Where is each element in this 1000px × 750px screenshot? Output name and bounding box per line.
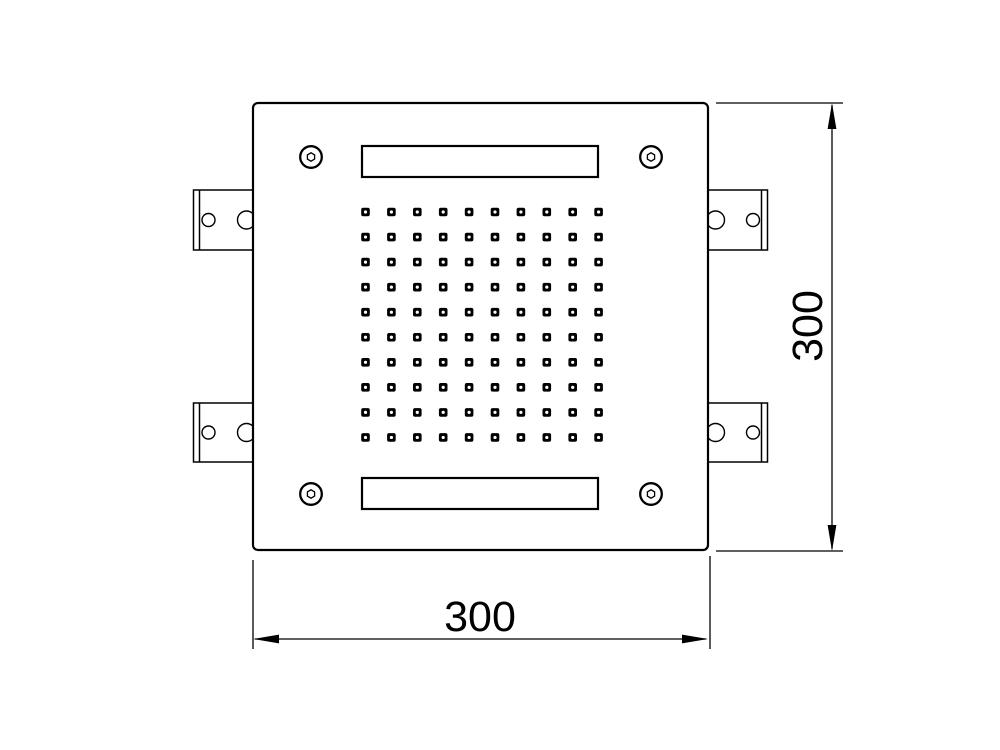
nozzle-center-hole <box>519 436 522 439</box>
nozzle-center-hole <box>545 286 548 289</box>
nozzle-center-hole <box>571 336 574 339</box>
nozzle-center-hole <box>493 411 496 414</box>
nozzle-center-hole <box>493 210 496 213</box>
height-dimension: 300 <box>716 103 843 551</box>
nozzle-center-hole <box>468 361 471 364</box>
nozzle-center-hole <box>364 336 367 339</box>
nozzle-center-hole <box>571 361 574 364</box>
nozzle-center-hole <box>519 311 522 314</box>
nozzle-center-hole <box>468 411 471 414</box>
nozzle-center-hole <box>442 386 445 389</box>
nozzle-center-hole <box>468 336 471 339</box>
nozzle-center-hole <box>468 261 471 264</box>
nozzle-center-hole <box>571 261 574 264</box>
nozzle-center-hole <box>416 261 419 264</box>
nozzle-center-hole <box>364 210 367 213</box>
nozzle-center-hole <box>390 286 393 289</box>
nozzle-center-hole <box>545 235 548 238</box>
nozzle-center-hole <box>364 311 367 314</box>
nozzle-center-hole <box>519 411 522 414</box>
nozzle-center-hole <box>416 386 419 389</box>
nozzle-center-hole <box>442 336 445 339</box>
nozzle-center-hole <box>416 235 419 238</box>
nozzle-center-hole <box>390 210 393 213</box>
nozzle-center-hole <box>416 311 419 314</box>
nozzle-center-hole <box>493 286 496 289</box>
hex-socket-icon <box>307 153 314 161</box>
nozzle-center-hole <box>416 436 419 439</box>
nozzle-center-hole <box>442 436 445 439</box>
height-dimension-label: 300 <box>784 290 832 362</box>
bracket-hole-large <box>707 424 725 442</box>
nozzle-center-hole <box>545 361 548 364</box>
nozzle-center-hole <box>468 286 471 289</box>
nozzle-center-hole <box>597 336 600 339</box>
nozzle-center-hole <box>545 411 548 414</box>
nozzle-center-hole <box>571 411 574 414</box>
nozzle-center-hole <box>597 261 600 264</box>
hex-socket-icon <box>647 490 654 498</box>
nozzle-center-hole <box>519 286 522 289</box>
nozzle-center-hole <box>519 235 522 238</box>
nozzle-center-hole <box>545 336 548 339</box>
nozzle-center-hole <box>390 311 393 314</box>
nozzle-center-hole <box>364 361 367 364</box>
nozzle-center-hole <box>571 311 574 314</box>
nozzle-center-hole <box>390 361 393 364</box>
mounting-bracket-top-left <box>194 190 256 250</box>
nozzle-center-hole <box>545 386 548 389</box>
nozzle-center-hole <box>571 286 574 289</box>
nozzle-center-hole <box>364 386 367 389</box>
top-water-slot <box>362 146 598 177</box>
arrowhead-up-icon <box>828 103 837 129</box>
nozzle-center-hole <box>442 311 445 314</box>
nozzle-center-hole <box>416 361 419 364</box>
nozzle-center-hole <box>597 311 600 314</box>
nozzle-center-hole <box>442 210 445 213</box>
bracket-hole-small <box>747 426 760 439</box>
nozzle-center-hole <box>364 286 367 289</box>
nozzle-center-hole <box>416 336 419 339</box>
nozzle-center-hole <box>442 361 445 364</box>
nozzle-center-hole <box>545 436 548 439</box>
bracket-hole-small <box>202 214 215 227</box>
nozzle-center-hole <box>493 436 496 439</box>
nozzle-center-hole <box>571 210 574 213</box>
nozzle-center-hole <box>571 386 574 389</box>
nozzle-center-hole <box>364 235 367 238</box>
nozzle-center-hole <box>571 436 574 439</box>
nozzle-center-hole <box>468 436 471 439</box>
nozzle-center-hole <box>390 235 393 238</box>
nozzle-center-hole <box>545 311 548 314</box>
nozzle-center-hole <box>519 361 522 364</box>
hex-socket-icon <box>307 490 314 498</box>
nozzle-center-hole <box>597 411 600 414</box>
nozzle-center-hole <box>390 411 393 414</box>
nozzle-center-hole <box>493 261 496 264</box>
nozzle-center-hole <box>416 411 419 414</box>
mounting-bracket-bottom-right <box>707 403 768 462</box>
nozzle-center-hole <box>390 336 393 339</box>
arrowhead-down-icon <box>828 525 837 551</box>
corner-screw-bottom-right <box>640 483 662 505</box>
nozzle-center-hole <box>519 261 522 264</box>
nozzle-center-hole <box>493 386 496 389</box>
nozzle-center-hole <box>545 261 548 264</box>
nozzle-center-hole <box>597 210 600 213</box>
nozzle-center-hole <box>416 286 419 289</box>
nozzle-center-hole <box>493 235 496 238</box>
nozzle-center-hole <box>493 311 496 314</box>
nozzle-center-hole <box>442 235 445 238</box>
nozzle-center-hole <box>390 261 393 264</box>
arrowhead-right-icon <box>682 635 708 644</box>
nozzle-center-hole <box>364 261 367 264</box>
hex-socket-icon <box>647 153 654 161</box>
technical-drawing: 300 300 <box>0 0 1000 750</box>
nozzle-center-hole <box>571 235 574 238</box>
nozzle-center-hole <box>442 411 445 414</box>
nozzle-center-hole <box>442 261 445 264</box>
mounting-bracket-bottom-left <box>194 403 256 462</box>
bracket-hole-small <box>202 426 215 439</box>
width-dimension-label: 300 <box>444 593 516 641</box>
corner-screw-bottom-left <box>300 483 322 505</box>
mounting-bracket-top-right <box>707 190 768 250</box>
nozzle-center-hole <box>364 411 367 414</box>
nozzle-center-hole <box>468 386 471 389</box>
nozzle-center-hole <box>442 286 445 289</box>
nozzle-center-hole <box>597 361 600 364</box>
bracket-hole-large <box>707 211 725 229</box>
nozzle-center-hole <box>390 436 393 439</box>
nozzle-center-hole <box>493 361 496 364</box>
width-dimension: 300 <box>253 556 710 649</box>
nozzle-center-hole <box>519 386 522 389</box>
nozzle-center-hole <box>468 311 471 314</box>
nozzle-center-hole <box>390 386 393 389</box>
nozzle-center-hole <box>597 286 600 289</box>
bottom-water-slot <box>362 478 598 509</box>
nozzle-center-hole <box>416 210 419 213</box>
nozzle-center-hole <box>493 336 496 339</box>
nozzle-center-hole <box>364 436 367 439</box>
nozzle-center-hole <box>597 235 600 238</box>
nozzle-center-hole <box>597 386 600 389</box>
corner-screw-top-right <box>640 146 662 168</box>
arrowhead-left-icon <box>253 635 279 644</box>
corner-screw-top-left <box>300 146 322 168</box>
nozzle-center-hole <box>519 336 522 339</box>
nozzle-center-hole <box>597 436 600 439</box>
bracket-hole-small <box>747 214 760 227</box>
nozzle-center-hole <box>545 210 548 213</box>
nozzle-center-hole <box>468 235 471 238</box>
nozzle-center-hole <box>519 210 522 213</box>
nozzle-center-hole <box>468 210 471 213</box>
drawing-canvas: 300 300 <box>0 0 1000 750</box>
